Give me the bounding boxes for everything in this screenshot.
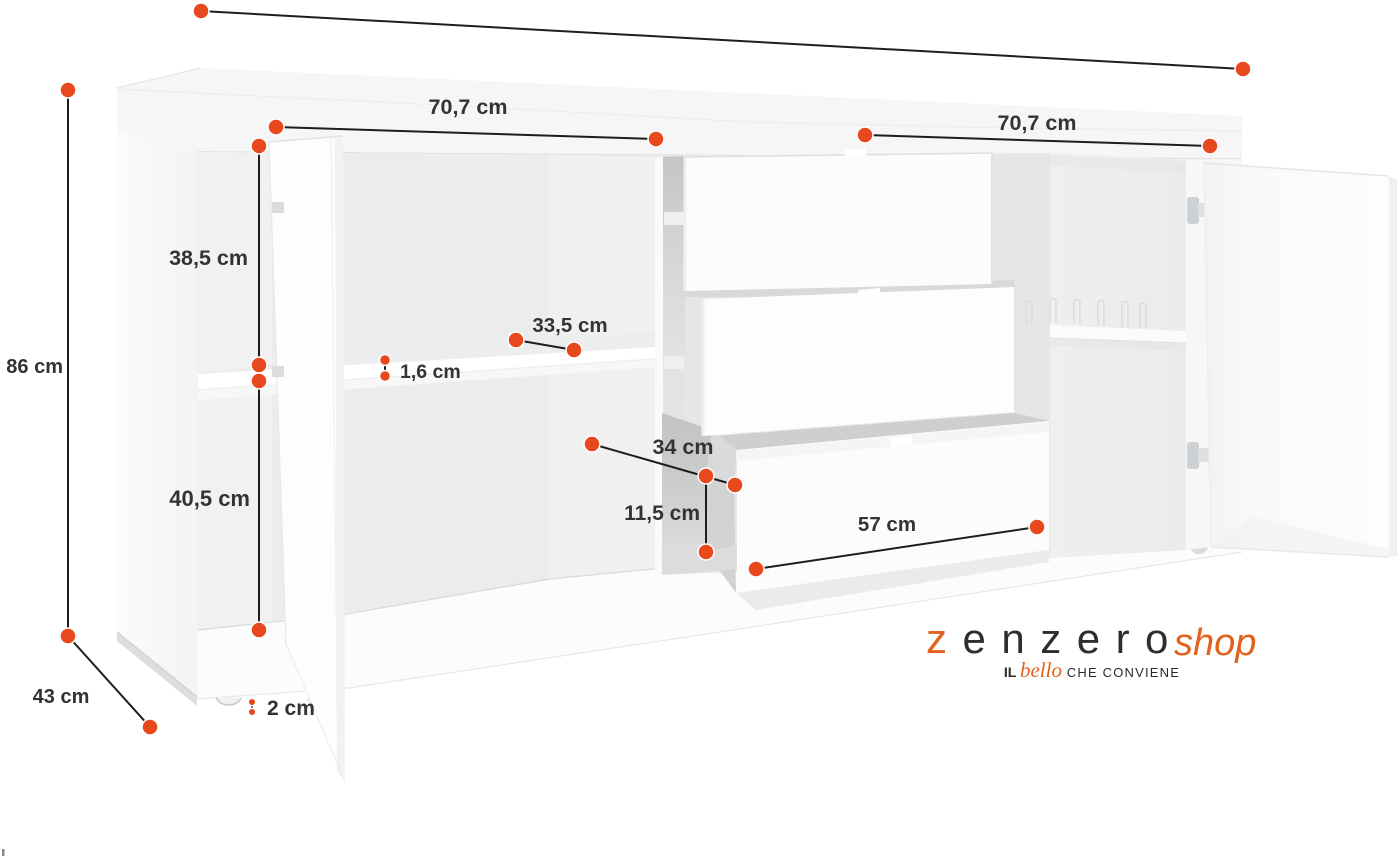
svg-text:86 cm: 86 cm [6,356,63,378]
svg-text:33,5 cm: 33,5 cm [532,314,607,337]
svg-text:40,5 cm: 40,5 cm [169,486,250,511]
svg-text:2 cm: 2 cm [267,697,315,720]
svg-text:70,7 cm: 70,7 cm [998,111,1077,135]
svg-text:zenzero: zenzero [926,615,1184,662]
svg-text:1,6 cm: 1,6 cm [400,361,461,383]
svg-text:70,7 cm: 70,7 cm [429,95,508,119]
svg-text:38,5 cm: 38,5 cm [169,246,248,270]
svg-text:34 cm: 34 cm [653,435,714,459]
svg-text:43 cm: 43 cm [33,686,90,708]
svg-text:11,5 cm: 11,5 cm [624,502,700,525]
svg-text:shop: shop [1174,622,1256,664]
svg-text:57 cm: 57 cm [858,513,916,536]
